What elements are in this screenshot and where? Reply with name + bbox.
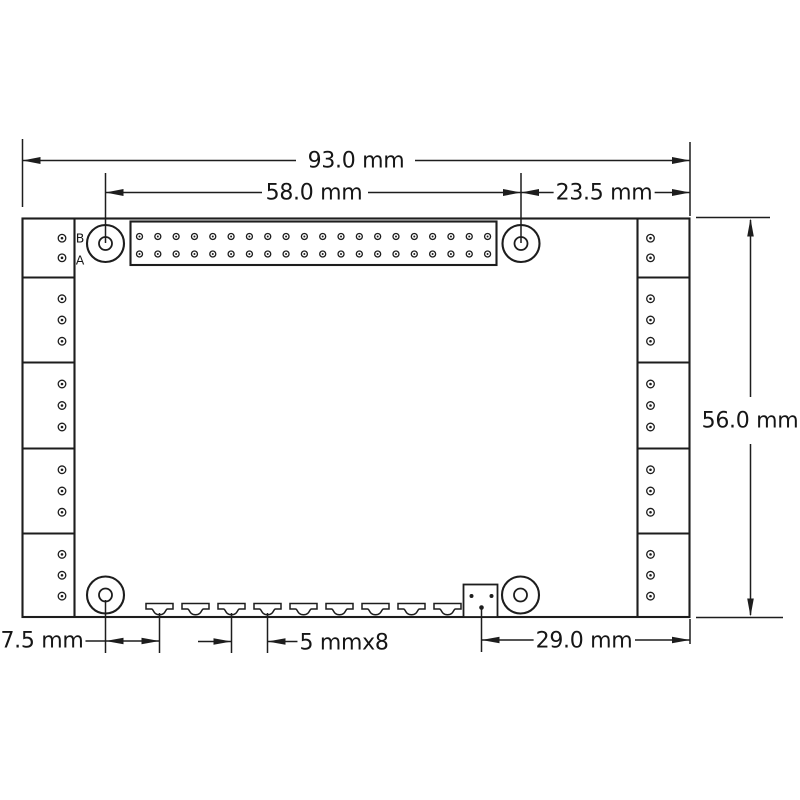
bottom-tab (362, 604, 389, 615)
gpio-pin-center (230, 253, 232, 255)
gpio-pin-center (193, 253, 195, 255)
terminal-pin-center (61, 319, 64, 322)
gpio-pin-center (248, 236, 250, 238)
terminal-pin-center (61, 490, 64, 493)
board-outline (23, 219, 690, 618)
terminal-pin-center (649, 340, 652, 343)
mounting-hole-inner (99, 589, 112, 602)
gpio-pin-center (267, 253, 269, 255)
terminal-pin-center (649, 426, 652, 429)
gpio-pin-center (322, 253, 324, 255)
gpio-pin-center (303, 253, 305, 255)
gpio-pin-center (468, 236, 470, 238)
gpio-pin-center (157, 253, 159, 255)
bottom-tab (326, 604, 353, 615)
gpio-pin-center (340, 253, 342, 255)
terminal-pin-center (61, 426, 64, 429)
terminal-pin-center (61, 468, 64, 471)
dimension-label-header-offset: 58.0 mm (264, 180, 365, 205)
terminal-pin-center (649, 404, 652, 407)
terminal-pin-center (61, 404, 64, 407)
gpio-pin-center (303, 236, 305, 238)
terminal-pin-center (649, 595, 652, 598)
gpio-pin-center (157, 236, 159, 238)
terminal-pin-center (61, 297, 64, 300)
terminal-pin-center (649, 490, 652, 493)
gpio-pin-center (413, 236, 415, 238)
dimension-label-hole-to-right-edge: 23.5 mm (554, 180, 655, 205)
gpio-pin-center (487, 236, 489, 238)
gpio-pin-center (175, 236, 177, 238)
mounting-hole-bottom-right (502, 577, 539, 614)
terminal-pin-center (649, 468, 652, 471)
terminal-pin-center (649, 319, 652, 322)
dimension-label-board-height: 56.0 mm (700, 408, 800, 433)
dimension-label-connector-to-right-edge: 29.0 mm (534, 628, 635, 653)
gpio-pin-center (377, 236, 379, 238)
gpio-pin-center (322, 236, 324, 238)
gpio-pin-center (175, 253, 177, 255)
terminal-pin-center (649, 383, 652, 386)
gpio-row-a-label: A (76, 253, 85, 268)
dimension-arrowheads (23, 157, 754, 645)
gpio-pin-center (450, 253, 452, 255)
gpio-pin-center (248, 253, 250, 255)
left-terminal-pins (58, 234, 66, 600)
terminal-pin-center (61, 553, 64, 556)
gpio-row-b-label: B (76, 231, 85, 246)
terminal-pin-center (61, 237, 64, 240)
gpio-pin-center (358, 236, 360, 238)
gpio-pin-center (395, 236, 397, 238)
bottom-tabs (146, 604, 461, 615)
terminal-pin-center (61, 595, 64, 598)
terminal-pin-center (61, 511, 64, 514)
gpio-pin-center (212, 253, 214, 255)
gpio-pin-center (340, 236, 342, 238)
gpio-pin-center (230, 236, 232, 238)
gpio-pin-center (285, 236, 287, 238)
gpio-pin-center (212, 236, 214, 238)
gpio-pin-center (139, 253, 141, 255)
gpio-pin-center (395, 253, 397, 255)
terminal-pin-center (649, 297, 652, 300)
connector-pad (470, 594, 474, 598)
terminal-pin-center (649, 574, 652, 577)
terminal-pin-center (61, 383, 64, 386)
gpio-pin-center (468, 253, 470, 255)
gpio-pin-center (377, 253, 379, 255)
terminal-pin-center (61, 340, 64, 343)
terminal-pin-center (649, 237, 652, 240)
gpio-pin-center (193, 236, 195, 238)
pcb-dimension-drawing: 93.0 mm 58.0 mm 23.5 mm 56.0 mm 7.5 mm 5… (0, 0, 800, 800)
gpio-pin-center (267, 236, 269, 238)
mounting-hole-inner (514, 589, 527, 602)
gpio-pin-center (139, 236, 141, 238)
gpio-header-pins (137, 234, 491, 258)
bottom-tab (398, 604, 425, 615)
gpio-pin-center (432, 236, 434, 238)
bottom-tab (182, 604, 209, 615)
dimension-label-tab-pitch: 5 mmx8 (297, 630, 390, 655)
gpio-pin-center (450, 236, 452, 238)
gpio-header-outline (131, 222, 497, 266)
bottom-tab (434, 604, 461, 615)
drawing-svg (0, 0, 800, 800)
left-terminal-separators (23, 278, 75, 534)
extension-lines (23, 139, 784, 653)
bottom-connector-outline (464, 585, 498, 618)
terminal-pin-center (649, 553, 652, 556)
gpio-pin-center (432, 253, 434, 255)
gpio-pin-center (358, 253, 360, 255)
right-terminal-pins (647, 234, 655, 600)
bottom-connector (464, 585, 498, 618)
gpio-pin-center (413, 253, 415, 255)
terminal-pin-center (61, 257, 64, 260)
right-terminal-separators (638, 278, 690, 534)
terminal-pin-center (61, 574, 64, 577)
bottom-tab (290, 604, 317, 615)
terminal-pin-center (649, 257, 652, 260)
dimension-label-hole-to-first-tab: 7.5 mm (0, 628, 86, 653)
dimension-lines (23, 161, 751, 642)
dimension-label-board-width: 93.0 mm (306, 148, 407, 173)
connector-pad (490, 594, 494, 598)
gpio-pin-center (285, 253, 287, 255)
gpio-pin-center (487, 253, 489, 255)
terminal-pin-center (649, 511, 652, 514)
